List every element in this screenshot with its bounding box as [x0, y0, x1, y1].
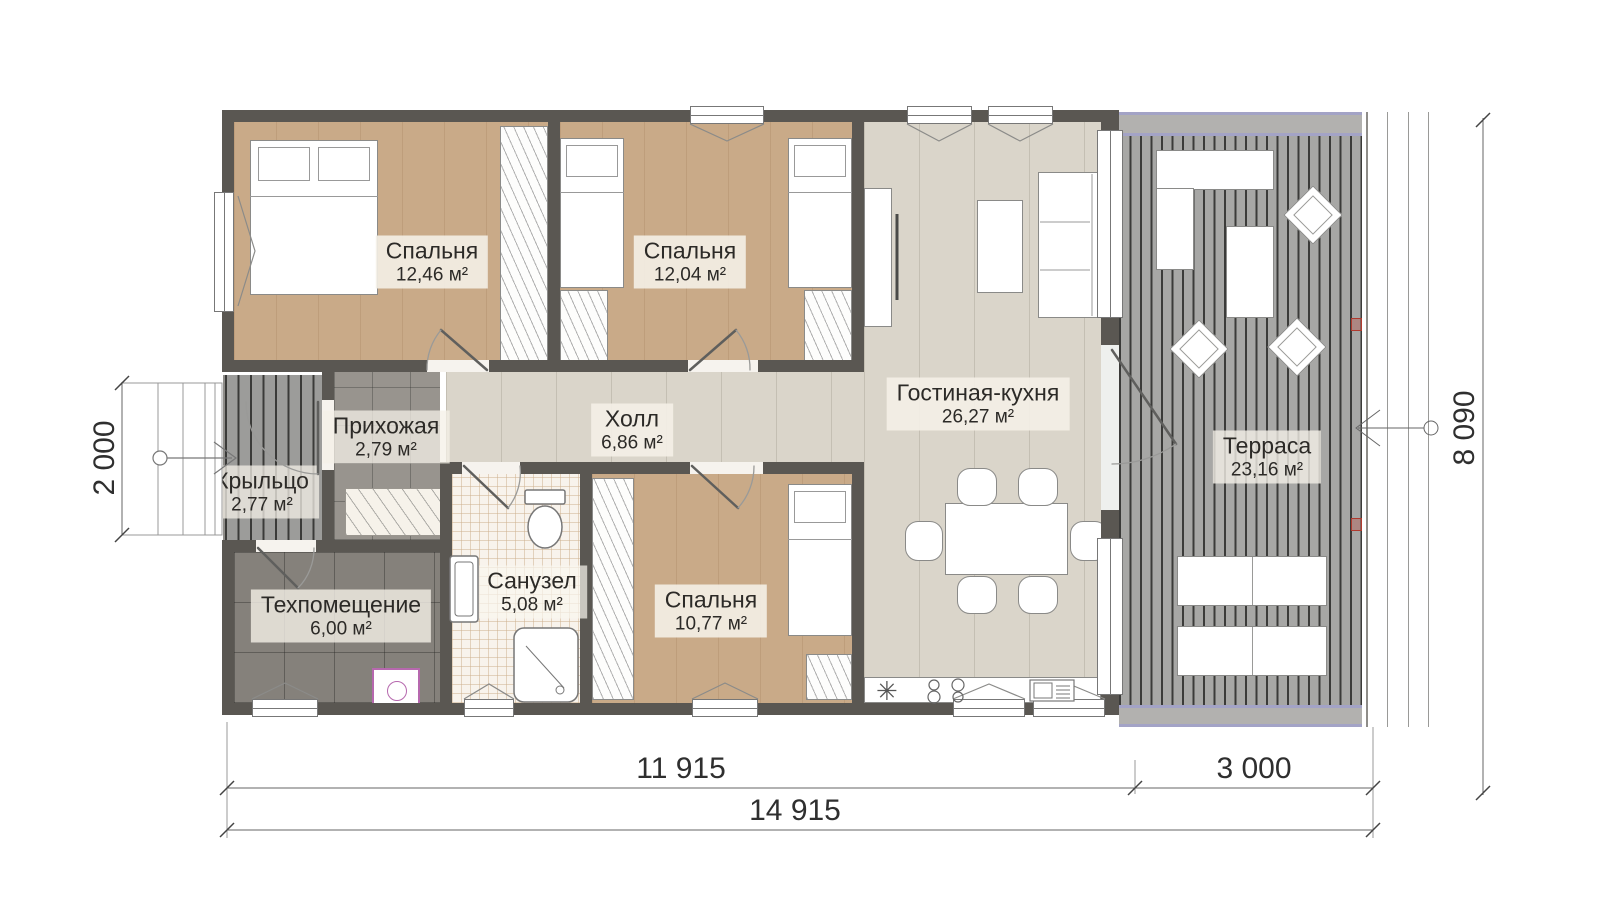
- room-name: Санузел: [487, 568, 577, 594]
- pillow: [258, 147, 310, 181]
- sun-lounger: [1177, 556, 1327, 606]
- room-area: 23,16 м²: [1223, 459, 1311, 480]
- room-name: Спальня: [665, 587, 757, 613]
- dim-tick: [1476, 786, 1490, 800]
- door-opening: [462, 462, 520, 474]
- window: [464, 699, 514, 717]
- room-label-tech-room: Техпомещение 6,00 м²: [251, 589, 431, 642]
- terrace-roof-edge-bottom: [1119, 705, 1362, 727]
- drain-marker: [1351, 518, 1362, 531]
- terrace-leader-group: [1356, 410, 1438, 446]
- tv-console: [864, 188, 892, 327]
- leader-circle: [1424, 421, 1438, 435]
- double-bed: [250, 140, 378, 295]
- wall: [222, 360, 864, 372]
- doormat: [345, 488, 441, 536]
- room-name: Холл: [601, 406, 663, 432]
- dim-tick: [1476, 113, 1490, 127]
- wall: [222, 110, 1117, 122]
- terrace-deck-edge: [1366, 112, 1368, 727]
- pillow: [318, 147, 370, 181]
- dim-tick: [1128, 781, 1142, 795]
- window: [907, 106, 972, 124]
- wall: [222, 540, 234, 715]
- room-area: 10,77 м²: [665, 613, 757, 634]
- pillow: [794, 491, 846, 523]
- drain-marker: [1351, 318, 1362, 331]
- room-name: Крыльцо: [215, 468, 309, 494]
- room-name: Прихожая: [333, 413, 440, 439]
- roof-overhang-line: [1387, 112, 1388, 727]
- dim-label-left: 2 000: [88, 420, 121, 495]
- room-label-terrace: Терраса 23,16 м²: [1213, 430, 1321, 483]
- wardrobe: [804, 290, 852, 366]
- terrace-roof-edge-top: [1119, 112, 1362, 136]
- window: [1033, 699, 1105, 717]
- door-opening: [690, 462, 763, 474]
- single-bed: [788, 138, 852, 288]
- dim-tick: [115, 528, 129, 542]
- roof-overhang-line: [1428, 112, 1429, 727]
- room-label-hall: Холл 6,86 м²: [591, 403, 673, 456]
- window: [690, 106, 764, 124]
- coffee-table: [977, 200, 1023, 293]
- dim-tick: [220, 781, 234, 795]
- room-label-bathroom: Санузел 5,08 м²: [477, 565, 587, 618]
- window: [692, 699, 758, 717]
- room-area: 2,79 м²: [333, 439, 440, 460]
- chair: [957, 576, 997, 614]
- room-name: Гостиная-кухня: [897, 380, 1060, 406]
- outdoor-table: [1226, 226, 1274, 318]
- dim-tick: [1366, 823, 1380, 837]
- room-name: Техпомещение: [261, 592, 421, 618]
- wardrobe: [592, 478, 634, 700]
- single-bed: [560, 138, 624, 288]
- room-label-entry: Прихожая 2,79 м²: [323, 410, 450, 463]
- room-area: 26,27 м²: [897, 406, 1060, 427]
- single-bed: [788, 484, 852, 636]
- roof-overhang-line: [1408, 112, 1409, 727]
- room-label-porch: Крыльцо 2,77 м²: [205, 465, 319, 518]
- pillow: [566, 145, 618, 177]
- pillow: [794, 145, 846, 177]
- window: [214, 192, 234, 312]
- wall: [440, 474, 452, 703]
- chair: [905, 521, 943, 561]
- room-name: Спальня: [386, 238, 478, 264]
- sun-lounger: [1177, 626, 1327, 676]
- chair: [1018, 468, 1058, 506]
- wardrobe: [560, 290, 608, 366]
- room-label-bedroom-2: Спальня 12,04 м²: [634, 235, 746, 288]
- outdoor-sofa: [1156, 150, 1274, 190]
- room-area: 12,46 м²: [386, 264, 478, 285]
- room-area: 2,77 м²: [215, 494, 309, 515]
- floor-plan: Спальня 12,46 м² Спальня 12,04 м² Гостин…: [0, 0, 1599, 900]
- outdoor-sofa: [1156, 188, 1194, 270]
- wardrobe: [500, 126, 548, 366]
- room-area: 5,08 м²: [487, 594, 577, 615]
- dim-label-right: 8 090: [1448, 390, 1481, 465]
- dining-table: [945, 503, 1068, 575]
- room-label-bedroom-3: Спальня 10,77 м²: [655, 584, 767, 637]
- chair: [1018, 576, 1058, 614]
- dim-tick: [220, 823, 234, 837]
- room-label-living-kitchen: Гостиная-кухня 26,27 м²: [887, 377, 1070, 430]
- door-opening: [256, 540, 316, 552]
- window: [988, 106, 1053, 124]
- dim-label-bottom-house: 11 915: [636, 752, 726, 785]
- dim-label-bottom-terrace: 3 000: [1216, 752, 1291, 785]
- door-opening: [427, 360, 489, 372]
- room-name: Терраса: [1223, 433, 1311, 459]
- dim-label-bottom-total: 14 915: [749, 794, 841, 827]
- terrace-door-opening: [1101, 345, 1119, 510]
- room-area: 6,86 м²: [601, 432, 663, 453]
- window: [252, 699, 318, 717]
- chair: [957, 468, 997, 506]
- dresser: [806, 654, 852, 700]
- wall: [548, 122, 560, 360]
- window: [1097, 538, 1123, 695]
- entry-arrow-start: [153, 451, 167, 465]
- window: [953, 699, 1025, 717]
- room-area: 6,00 м²: [261, 618, 421, 639]
- window: [1097, 130, 1123, 318]
- wall: [852, 122, 864, 360]
- room-name: Спальня: [644, 238, 736, 264]
- door-opening: [688, 360, 758, 372]
- room-area: 12,04 м²: [644, 264, 736, 285]
- room-label-bedroom-1: Спальня 12,46 м²: [376, 235, 488, 288]
- dim-tick: [115, 376, 129, 390]
- dim-tick: [1366, 781, 1380, 795]
- wall: [852, 474, 864, 703]
